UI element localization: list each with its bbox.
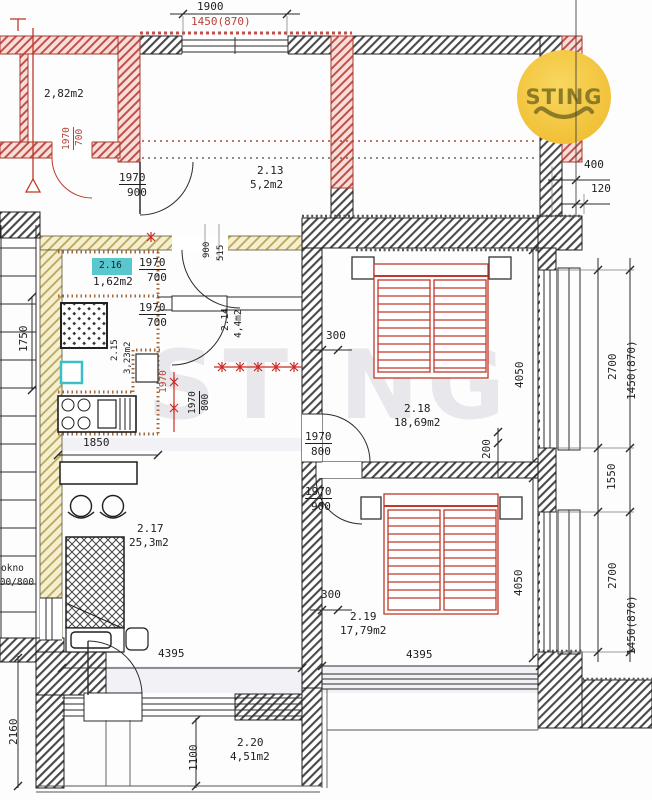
room-label-220-id: 2.20 xyxy=(237,737,264,748)
door-label-219-w: 900 xyxy=(311,501,331,512)
room-label-217-id: 2.17 xyxy=(137,523,164,534)
boiler-teal-icon xyxy=(61,362,82,383)
room-label-217-area: 25,3m2 xyxy=(129,537,169,548)
dim-stair-run: 1750 xyxy=(18,326,29,353)
window-note-size: 700/800 xyxy=(0,578,34,588)
room-label-216-area: 1,62m2 xyxy=(93,276,133,287)
dim-balcony-height: 2160 xyxy=(8,719,19,746)
dim-niche-900: 900 xyxy=(203,242,212,258)
room-label-216-id: 2.16 xyxy=(99,261,122,271)
door-label-hall-v-h: 1970 xyxy=(188,391,200,414)
room-label-218-area: 18,69m2 xyxy=(394,417,440,428)
sting-logo-text: STING xyxy=(525,85,602,109)
dim-win1-h: 2700 xyxy=(607,354,618,381)
cabinet-icon xyxy=(136,354,158,382)
door-label-hall-v-red: 1970 xyxy=(159,370,169,393)
room-label-213-area: 5,2m2 xyxy=(250,179,283,190)
dim-300b: 300 xyxy=(321,589,341,600)
room-label-214-id: 2.14 xyxy=(221,308,231,331)
room-label-214-area: 4,4m2 xyxy=(234,309,244,338)
door-label-218-w: 800 xyxy=(311,446,331,457)
dim-win2-w: 1450(870) xyxy=(626,595,637,655)
dim-4050a: 4050 xyxy=(514,362,525,389)
room-label-top-left-area: 2,82m2 xyxy=(44,88,84,99)
door-label-top900-h: 1970 xyxy=(119,172,146,185)
room-label-219-area: 17,79m2 xyxy=(340,625,386,636)
sting-logo: STING xyxy=(517,50,611,144)
dim-4395a: 4395 xyxy=(158,648,185,659)
stove-icon xyxy=(58,396,136,432)
door-label-219-h: 1970 xyxy=(305,486,332,499)
bed-icon-218 xyxy=(352,257,511,378)
door-label-hall-b-w: 700 xyxy=(147,317,167,328)
dim-4050b: 4050 xyxy=(513,570,524,597)
dim-off-120: 120 xyxy=(591,183,611,194)
dim-top-window: 1450(870) xyxy=(191,16,251,27)
room-label-218-id: 2.18 xyxy=(404,403,431,414)
bed-icon-219 xyxy=(361,494,522,614)
door-label-red-w: 700 xyxy=(75,129,85,146)
dim-kitchen-width: 1850 xyxy=(83,437,110,448)
dim-balcony-depth: 1100 xyxy=(188,745,199,772)
dim-4395b: 4395 xyxy=(406,649,433,660)
room-label-219-id: 2.19 xyxy=(350,611,377,622)
dim-pier: 1550 xyxy=(606,464,617,491)
room-label-215-id: 2.15 xyxy=(111,339,120,361)
bar-counter-icon xyxy=(60,462,137,484)
room-label-215-area: 3,23m2 xyxy=(124,341,133,374)
floorplan-canvas: STING xyxy=(0,0,652,800)
door-label-hall-a-w: 700 xyxy=(147,272,167,283)
door-label-top900-w: 900 xyxy=(127,187,147,198)
door-label-218-h: 1970 xyxy=(305,431,332,444)
door-label-red-h: 1970 xyxy=(62,127,74,150)
room-label-213-id: 2.13 xyxy=(257,165,284,176)
dim-win2-h: 2700 xyxy=(607,563,618,590)
door-label-hall-a-h: 1970 xyxy=(139,257,166,270)
floorplan-drawing: STING xyxy=(0,0,652,800)
dim-200: 200 xyxy=(481,439,492,459)
door-label-hall-b-h: 1970 xyxy=(139,302,166,315)
shower-tray-icon xyxy=(61,303,107,348)
door-label-hall-v-w: 800 xyxy=(201,394,211,411)
window-note-label: okno xyxy=(1,564,24,574)
dim-300a: 300 xyxy=(326,330,346,341)
dim-niche-515: 515 xyxy=(217,245,226,261)
dim-win1-w: 1450(870) xyxy=(626,340,637,400)
dim-top-width: 1900 xyxy=(197,1,224,12)
room-label-220-area: 4,51m2 xyxy=(230,751,270,762)
dim-off-400: 400 xyxy=(584,159,604,170)
